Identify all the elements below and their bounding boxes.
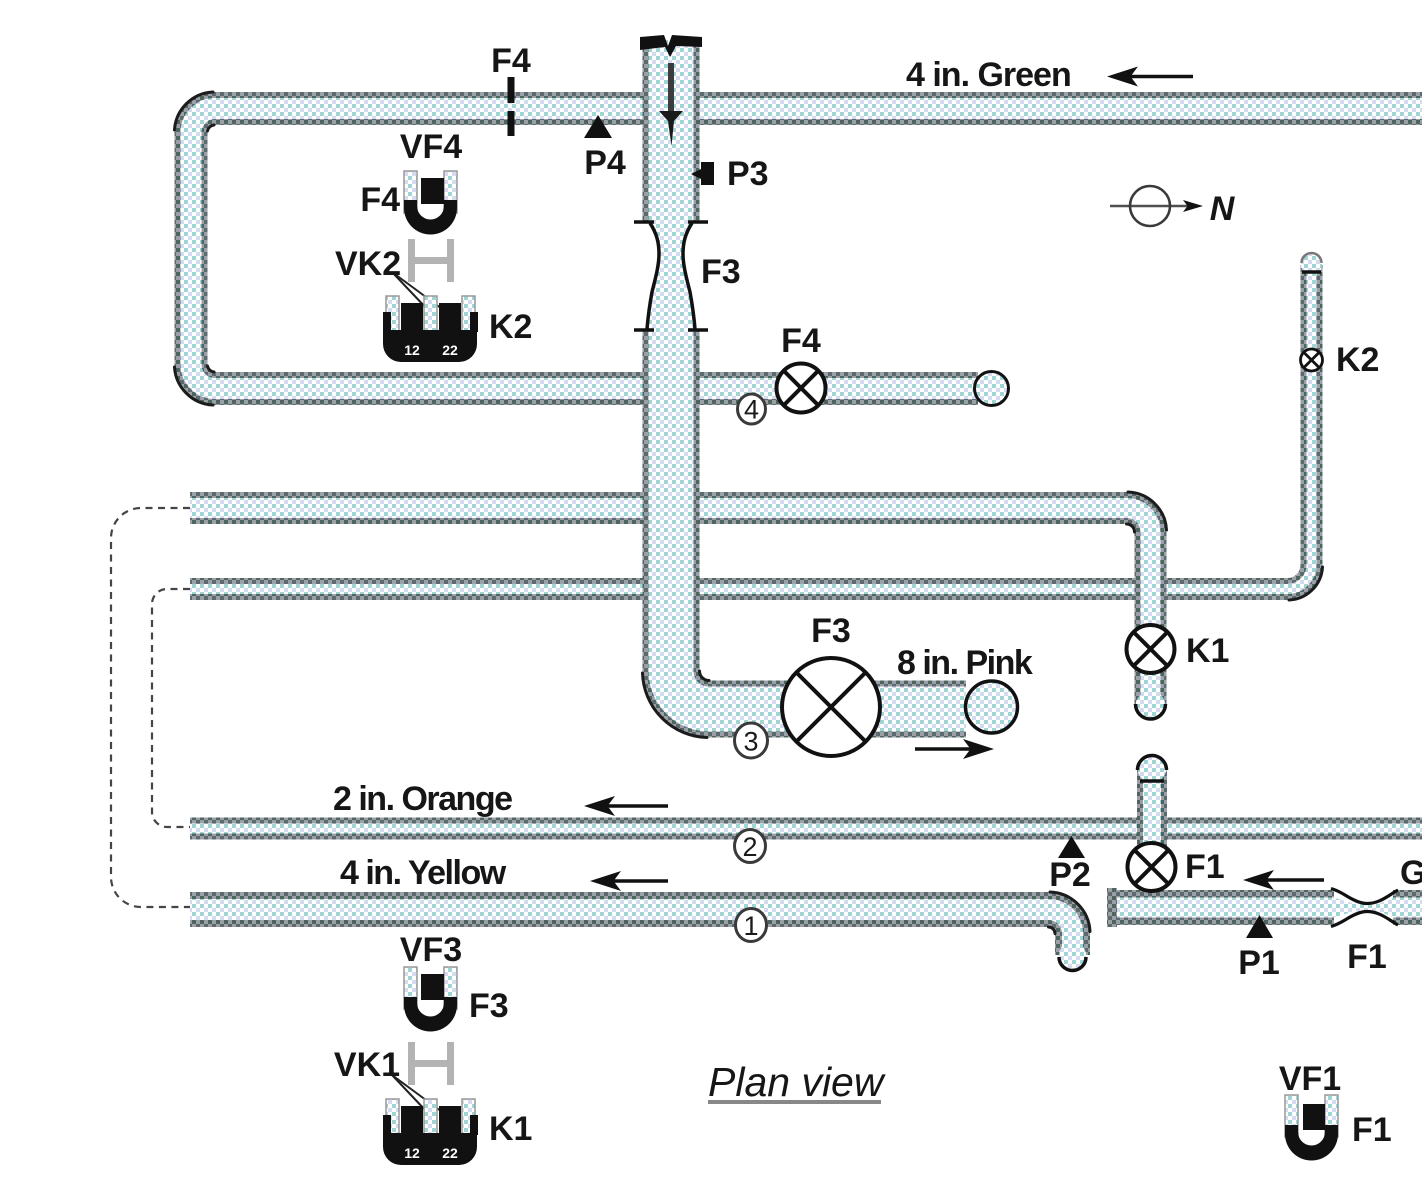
svg-text:P2: P2 xyxy=(1049,856,1091,894)
svg-text:3: 3 xyxy=(743,727,758,757)
svg-text:2: 2 xyxy=(742,832,757,862)
svg-text:F3: F3 xyxy=(811,612,851,650)
svg-text:VF4: VF4 xyxy=(400,128,462,166)
svg-text:K1: K1 xyxy=(1186,632,1229,670)
svg-text:4 in. Yellow: 4 in. Yellow xyxy=(340,854,507,892)
svg-text:F3: F3 xyxy=(701,253,741,291)
svg-text:VF1: VF1 xyxy=(1279,1060,1341,1098)
svg-text:K2: K2 xyxy=(489,308,532,346)
svg-text:22: 22 xyxy=(442,342,458,358)
svg-text:VK1: VK1 xyxy=(334,1046,400,1084)
svg-text:P1: P1 xyxy=(1238,944,1280,982)
svg-text:N: N xyxy=(1210,190,1236,228)
svg-text:2 in. Orange: 2 in. Orange xyxy=(333,780,512,818)
svg-text:K2: K2 xyxy=(1336,341,1379,379)
svg-text:F1: F1 xyxy=(1185,848,1225,886)
svg-text:F1: F1 xyxy=(1352,1111,1392,1149)
svg-text:P4: P4 xyxy=(584,144,626,182)
svg-text:12: 12 xyxy=(404,342,420,358)
svg-text:F1: F1 xyxy=(1347,938,1387,976)
svg-text:22: 22 xyxy=(442,1145,458,1161)
svg-text:F4: F4 xyxy=(491,42,531,80)
svg-text:8 in. Pink: 8 in. Pink xyxy=(897,644,1033,682)
svg-text:F4: F4 xyxy=(360,181,400,219)
svg-text:VF3: VF3 xyxy=(400,931,462,969)
svg-text:4: 4 xyxy=(744,395,759,425)
svg-text:Plan view: Plan view xyxy=(708,1059,886,1105)
svg-text:K1: K1 xyxy=(489,1110,532,1148)
svg-text:F4: F4 xyxy=(781,322,821,360)
svg-text:12: 12 xyxy=(404,1145,420,1161)
svg-text:1: 1 xyxy=(743,911,758,941)
svg-text:P3: P3 xyxy=(727,155,769,193)
svg-text:F3: F3 xyxy=(469,987,509,1025)
svg-text:4 in. Green: 4 in. Green xyxy=(906,56,1071,94)
svg-text:VK2: VK2 xyxy=(335,245,401,283)
svg-text:Gr: Gr xyxy=(1400,854,1422,892)
